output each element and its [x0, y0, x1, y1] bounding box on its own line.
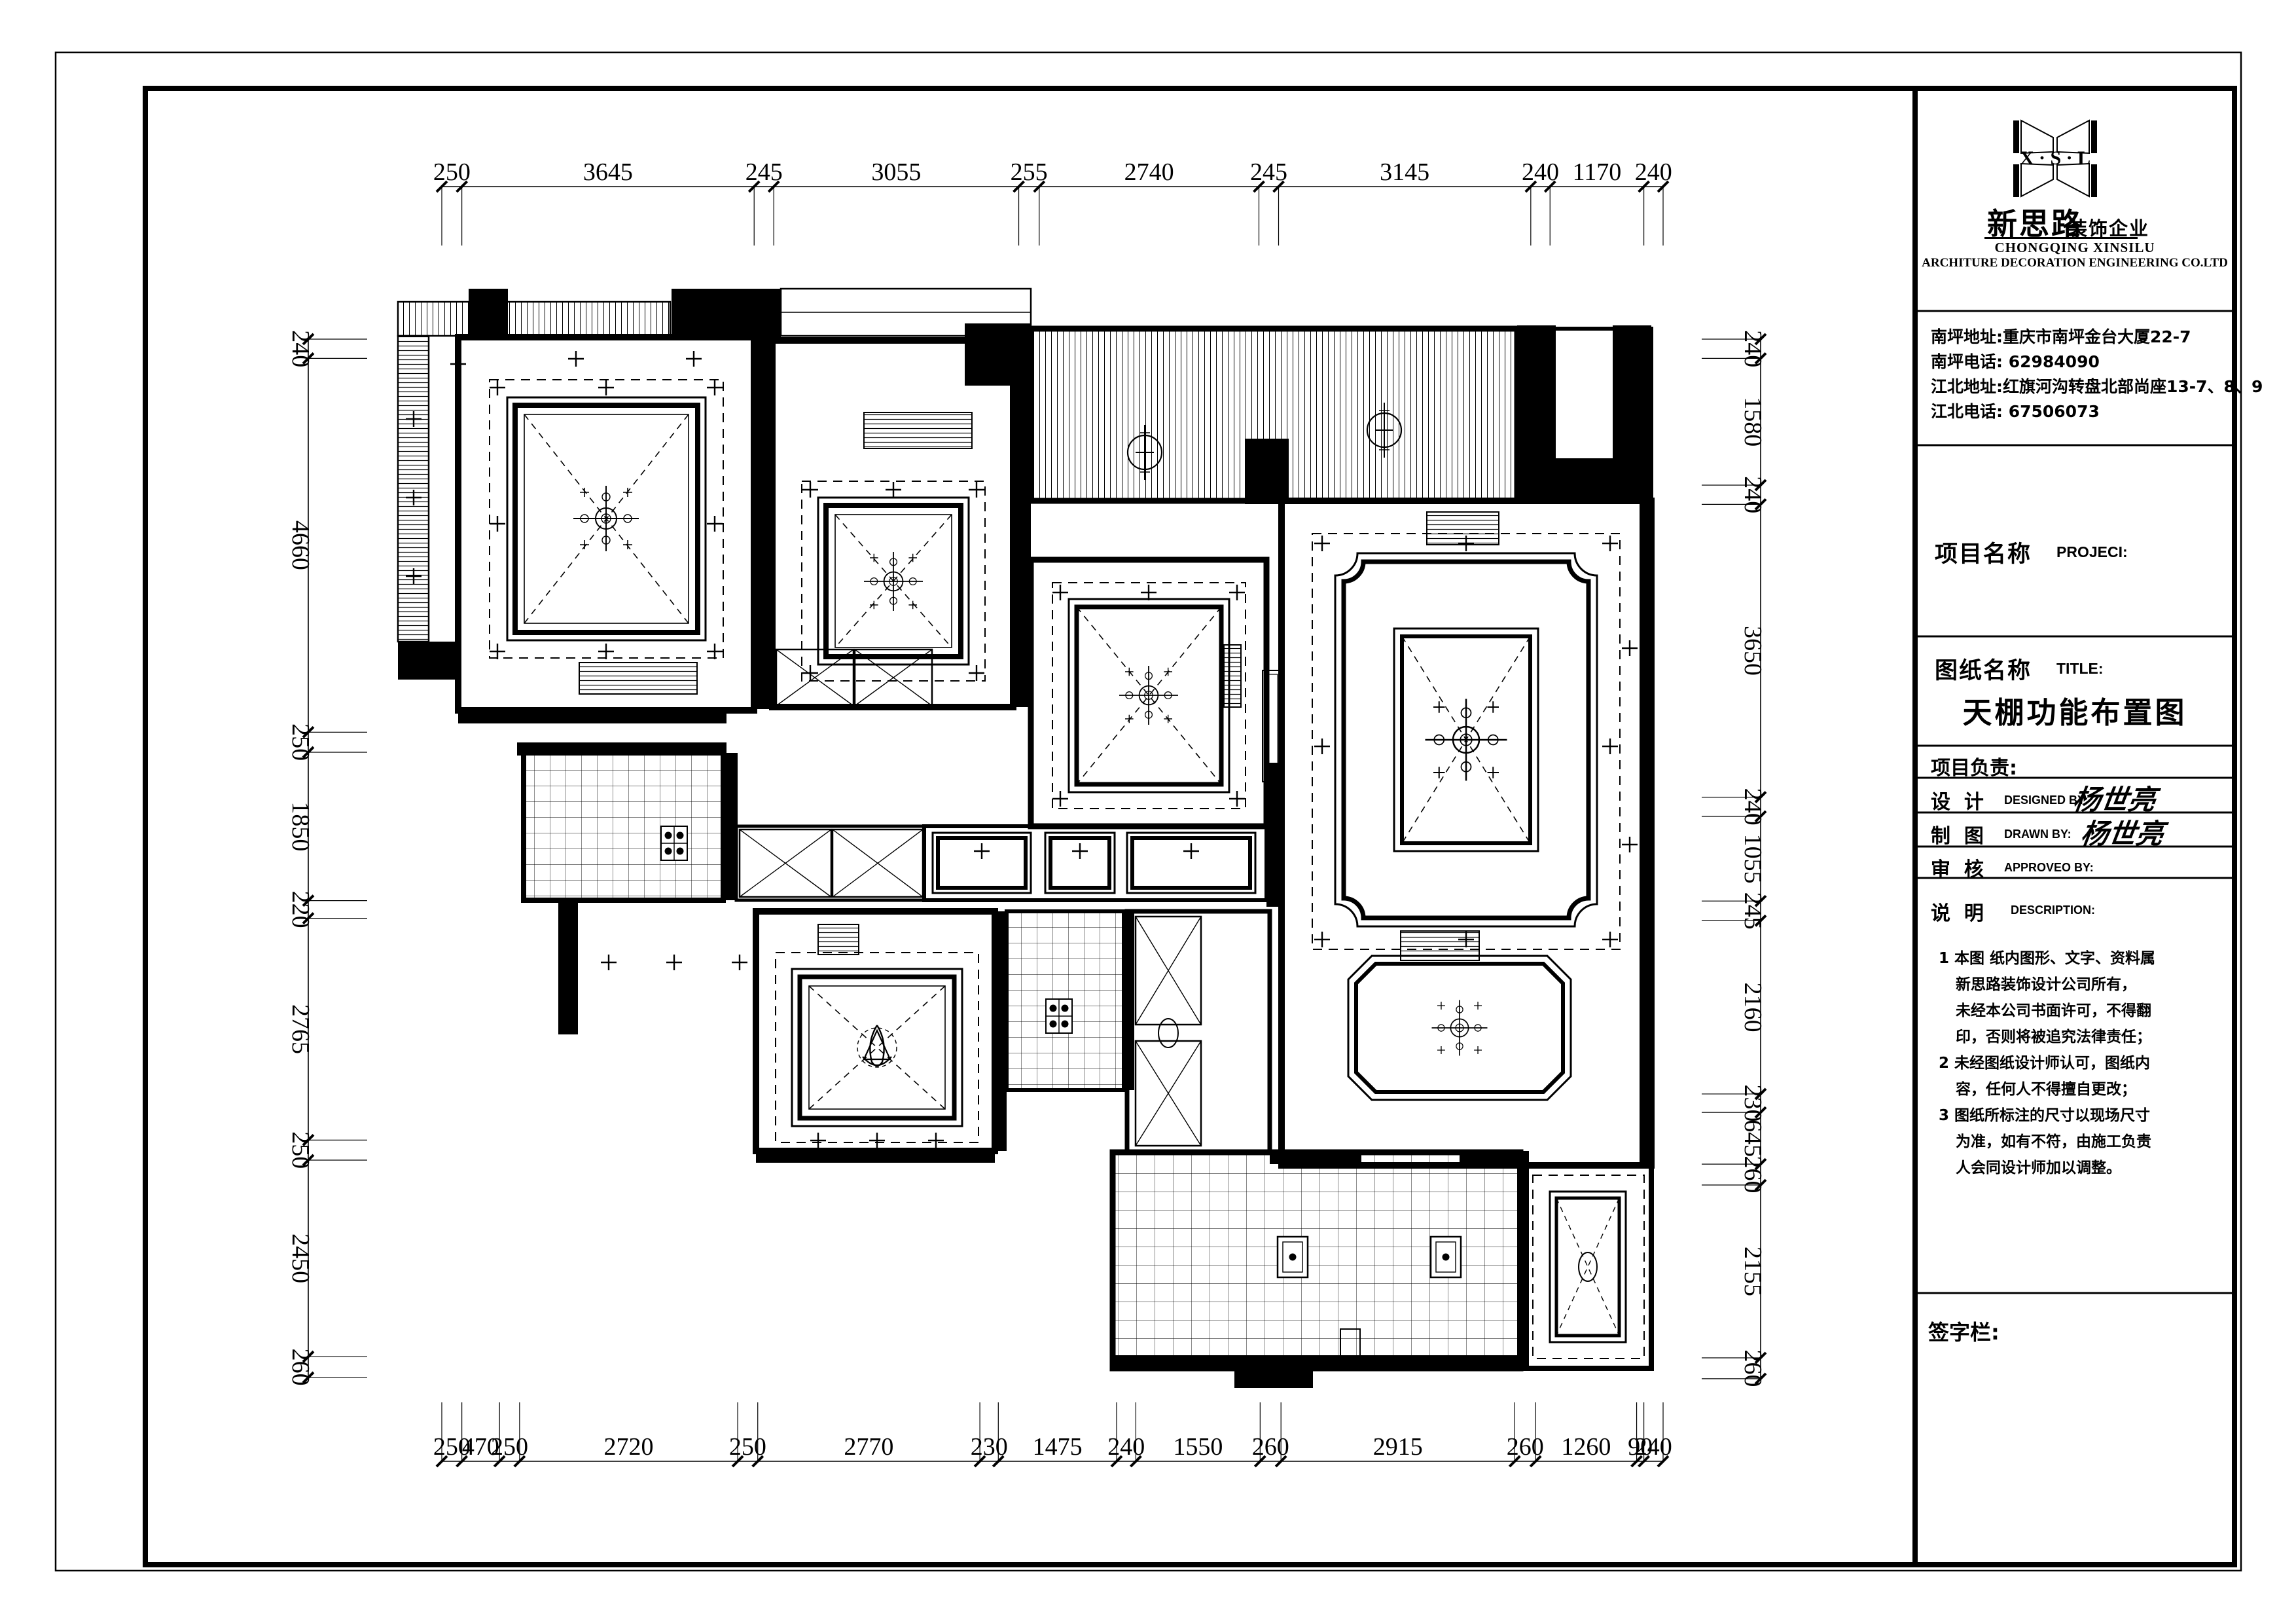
dim-label: 250 [491, 1433, 528, 1461]
dim-label: 230 [1739, 1085, 1767, 1122]
description-notes: 1 本图 纸内图形、文字、资料属新思路装饰设计公司所有，未经本公司书面许可，不得… [1939, 945, 2231, 1181]
dim-label: 250 [287, 723, 314, 761]
contact-line: 南坪地址:重庆市南坪金台大厦22-7 [1931, 325, 2263, 350]
dim-label: 250 [287, 1131, 314, 1169]
panel-bedroom3 [776, 924, 978, 1142]
brand-underline [1984, 237, 2138, 239]
project-label-en: PROJECI: [2056, 543, 2128, 561]
description-line: 未经本公司书面许可，不得翻 [1939, 998, 2231, 1024]
dim-label: 240 [1739, 476, 1767, 513]
dim-label: 240 [1635, 1433, 1672, 1461]
dim-label: 1170 [1573, 158, 1622, 186]
design-label-cn: 设 计 [1931, 786, 1984, 814]
contact-info: 南坪地址:重庆市南坪金台大厦22-7南坪电话: 62984090江北地址:红旗河… [1931, 325, 2263, 424]
company-en-line1: CHONGQING XINSILU [1915, 240, 2234, 256]
company-en-line2: ARCHITURE DECORATION ENGINEERING CO.LTD [1915, 256, 2234, 270]
description-label-cn: 说 明 [1931, 897, 1984, 926]
dim-label: 260 [1507, 1433, 1544, 1461]
dim-label: 240 [1739, 788, 1767, 826]
draft-label-en: DRAWN BY: [2004, 828, 2072, 841]
signature-bar-label: 签字栏: [1928, 1316, 2000, 1346]
contact-line: 江北电话: 67506073 [1931, 399, 2263, 424]
panel-bedroom2 [776, 412, 985, 706]
approve-label-cn: 审 核 [1931, 853, 1984, 882]
dim-label: 260 [1252, 1433, 1289, 1461]
description-line: 2 未经图纸设计师认可，图纸内 [1939, 1050, 2231, 1076]
sheet-title-label-cn: 图纸名称 [1935, 652, 2032, 685]
dim-label: 250 [729, 1433, 766, 1461]
panel-living [1263, 512, 1620, 1100]
panel-bath [1136, 917, 1201, 1146]
description-line: 3 图纸所标注的尺寸以现场尺寸 [1939, 1103, 2231, 1129]
dim-label: 1055 [1739, 834, 1767, 884]
sheet-title-value: 天棚功能布置图 [1915, 689, 2234, 731]
approve-label-en: APPROVEO BY: [2004, 861, 2094, 875]
dim-label: 1260 [1561, 1433, 1611, 1461]
panel-xband [740, 830, 923, 897]
dim-label: 1580 [1739, 397, 1767, 447]
project-label-cn: 项目名称 [1935, 536, 2032, 569]
dim-label: 220 [287, 891, 314, 928]
dim-label: 1550 [1173, 1433, 1223, 1461]
draftsman-signature: 杨世亮 [2079, 812, 2167, 852]
dim-label: 3145 [1380, 158, 1429, 186]
panel-dining [1052, 583, 1246, 809]
dim-label: 3055 [871, 158, 921, 186]
dim-label: 2770 [844, 1433, 893, 1461]
logo-letters: X · S · L [2020, 147, 2090, 169]
dim-label: 2160 [1739, 983, 1767, 1032]
description-label-en: DESCRIPTION: [2011, 903, 2095, 917]
dim-label: 3645 [583, 158, 633, 186]
lead-label: 项目负责: [1931, 752, 2017, 780]
dim-label: 260 [287, 1349, 314, 1386]
dim-label: 2740 [1124, 158, 1174, 186]
dim-label: 4660 [287, 520, 314, 570]
dim-label: 1850 [287, 801, 314, 851]
dim-label: 645 [1739, 1120, 1767, 1157]
description-line: 印，否则将被追究法律责任； [1939, 1024, 2231, 1050]
dim-label: 260 [1739, 1156, 1767, 1194]
dim-label: 245 [745, 158, 783, 186]
dim-label: 2720 [603, 1433, 653, 1461]
dim-chain: 25036452453055255274024531452401170240 [433, 158, 1672, 246]
dim-label: 1475 [1033, 1433, 1083, 1461]
dim-label: 2450 [287, 1233, 314, 1283]
contact-line: 南坪电话: 62984090 [1931, 350, 2263, 374]
draft-label-cn: 制 图 [1931, 820, 1984, 848]
description-line: 容，任何人不得擅自更改； [1939, 1076, 2231, 1103]
dim-label: 3650 [1739, 626, 1767, 676]
description-line: 人会同设计师加以调整。 [1939, 1155, 2231, 1181]
description-line: 为准，如有不符，由施工负责 [1939, 1129, 2231, 1155]
dim-label: 230 [971, 1433, 1008, 1461]
dim-label: 2765 [287, 1004, 314, 1054]
dim-chain: 2404660250185022027652502450260 [287, 330, 367, 1385]
contact-line: 江北地址:红旗河沟转盘北部尚座13-7、8、9 [1931, 374, 2263, 399]
description-line: 新思路装饰设计公司所有， [1939, 972, 2231, 998]
panel-right-room [1533, 1175, 1644, 1359]
dim-label: 245 [1250, 158, 1287, 186]
dim-label: 240 [1635, 158, 1672, 186]
dim-label: 240 [1107, 1433, 1145, 1461]
dim-label: 245 [1739, 892, 1767, 930]
company-logo-icon: X · S · L [2013, 120, 2097, 197]
dim-label: 2155 [1739, 1247, 1767, 1296]
dim-label: 240 [1522, 158, 1559, 186]
dim-label: 240 [287, 330, 314, 367]
dim-label: 260 [1739, 1349, 1767, 1387]
dim-label: 2915 [1373, 1433, 1423, 1461]
dim-label: 250 [433, 158, 471, 186]
panel-hall-strip [933, 833, 1255, 893]
dim-chain: 2504702502720250277023014752401550260291… [433, 1402, 1672, 1467]
dim-label: 240 [1739, 330, 1767, 367]
dim-label: 255 [1011, 158, 1048, 186]
drawing-sheet: X · S · L [0, 0, 2296, 1623]
sheet-title-label-en: TITLE: [2056, 660, 2104, 678]
description-line: 1 本图 纸内图形、文字、资料属 [1939, 945, 2231, 972]
dim-chain: 2401580240365024010552452160230645260215… [1702, 330, 1767, 1387]
